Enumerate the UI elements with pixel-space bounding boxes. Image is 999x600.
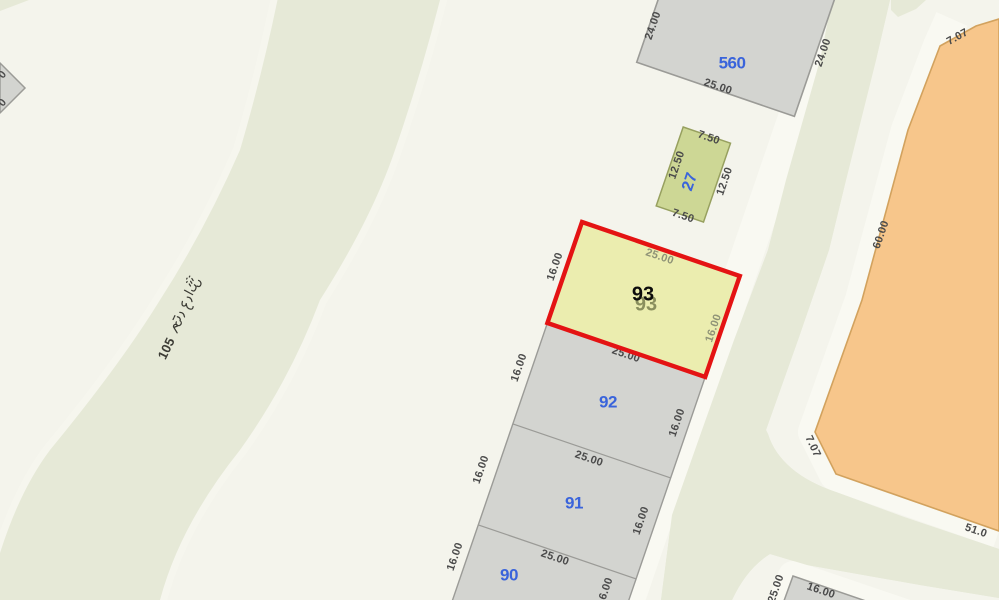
svg-text:91: 91 <box>565 494 583 513</box>
svg-text:92: 92 <box>599 393 617 412</box>
svg-text:90: 90 <box>500 566 518 585</box>
svg-text:560: 560 <box>719 54 746 73</box>
svg-text:93: 93 <box>632 284 654 306</box>
